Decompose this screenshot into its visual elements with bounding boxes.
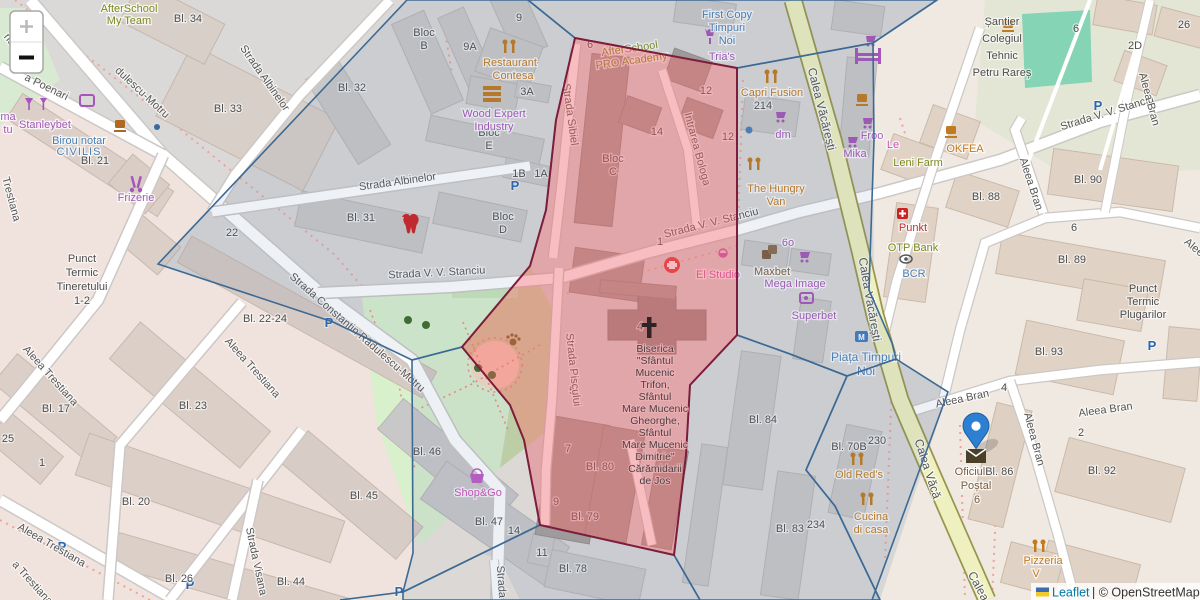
svg-text:Biserica: Biserica — [636, 343, 674, 355]
svg-text:Mucenic: Mucenic — [635, 367, 674, 379]
svg-text:25: 25 — [2, 433, 14, 445]
svg-text:1: 1 — [39, 457, 45, 469]
svg-text:Pizzeria: Pizzeria — [1023, 555, 1063, 567]
svg-text:Bl. 45: Bl. 45 — [350, 490, 378, 502]
svg-text:CIVILIS: CIVILIS — [57, 146, 102, 158]
svg-text:2: 2 — [1078, 427, 1084, 439]
svg-text:Frizerie: Frizerie — [118, 192, 155, 204]
svg-text:OficiulBl. 86: OficiulBl. 86 — [955, 466, 1014, 478]
svg-text:V: V — [1032, 568, 1040, 580]
svg-text:Leni Farm: Leni Farm — [893, 157, 943, 169]
svg-text:Bl. 34: Bl. 34 — [174, 13, 202, 25]
svg-text:Bl. 92: Bl. 92 — [1088, 465, 1116, 477]
svg-text:6: 6 — [1073, 23, 1079, 35]
svg-text:Bl. 26: Bl. 26 — [165, 573, 193, 585]
svg-text:Șantier: Șantier — [985, 16, 1020, 28]
svg-text:"Sfântul: "Sfântul — [637, 355, 673, 367]
svg-text:Sfântul: Sfântul — [639, 391, 672, 403]
svg-text:Plugarilor: Plugarilor — [1120, 309, 1167, 321]
svg-text:Bl. 33: Bl. 33 — [214, 103, 242, 115]
svg-text:Bl. 17: Bl. 17 — [42, 403, 70, 415]
svg-text:Poștal: Poștal — [961, 480, 992, 492]
svg-text:1-2: 1-2 — [74, 295, 90, 307]
svg-text:Sfântul: Sfântul — [639, 427, 672, 439]
svg-text:Leaflet: Leaflet — [1052, 586, 1090, 600]
svg-text:BCR: BCR — [902, 268, 925, 280]
svg-text:My Team: My Team — [107, 15, 151, 27]
svg-text:Colegiul: Colegiul — [982, 33, 1022, 45]
svg-text:Bl. 23: Bl. 23 — [179, 400, 207, 412]
svg-text:Tineretului: Tineretului — [57, 281, 108, 293]
svg-text:Dimitrie": Dimitrie" — [635, 451, 675, 463]
svg-text:Le: Le — [887, 139, 899, 151]
svg-text:6: 6 — [974, 494, 980, 506]
svg-text:tu: tu — [3, 124, 12, 136]
svg-text:Punkt: Punkt — [899, 222, 927, 234]
svg-text:Bl. 44: Bl. 44 — [277, 576, 305, 588]
svg-text:Mare Mucenic: Mare Mucenic — [622, 403, 688, 415]
svg-text:4: 4 — [1001, 382, 1007, 394]
svg-text:OTP Bank: OTP Bank — [888, 242, 939, 254]
svg-text:Petru Rareș: Petru Rareș — [973, 67, 1032, 79]
svg-text:de Jos: de Jos — [640, 475, 671, 487]
svg-text:Bl. 22-24: Bl. 22-24 — [243, 313, 287, 325]
svg-text:Termic: Termic — [66, 267, 99, 279]
svg-text:26: 26 — [1178, 19, 1190, 31]
svg-text:Punct: Punct — [68, 253, 96, 265]
svg-text:Bl. 88: Bl. 88 — [972, 191, 1000, 203]
svg-text:Tehnic: Tehnic — [986, 50, 1018, 62]
svg-text:AfterSchool: AfterSchool — [101, 3, 158, 15]
svg-text:Trifon,: Trifon, — [640, 379, 669, 391]
svg-text:P: P — [1148, 338, 1157, 353]
svg-text:Mare Mucenic: Mare Mucenic — [622, 439, 688, 451]
svg-text:| © OpenStreetMap: | © OpenStreetMap — [1092, 586, 1200, 600]
svg-text:Bl. 90: Bl. 90 — [1074, 174, 1102, 186]
svg-text:Termic: Termic — [1127, 296, 1160, 308]
svg-text:Punct: Punct — [1129, 283, 1157, 295]
svg-text:6: 6 — [1071, 222, 1077, 234]
svg-text:Stanleybet: Stanleybet — [19, 119, 71, 131]
svg-text:2D: 2D — [1128, 40, 1142, 52]
svg-text:ma: ma — [0, 111, 16, 123]
svg-text:Bl. 93: Bl. 93 — [1035, 346, 1063, 358]
svg-text:Bl. 89: Bl. 89 — [1058, 254, 1086, 266]
svg-text:OKFEA: OKFEA — [946, 143, 984, 155]
svg-text:Bl. 20: Bl. 20 — [122, 496, 150, 508]
svg-text:Cărămidarii: Cărămidarii — [628, 463, 682, 475]
svg-text:Gheorghe,: Gheorghe, — [630, 415, 680, 427]
